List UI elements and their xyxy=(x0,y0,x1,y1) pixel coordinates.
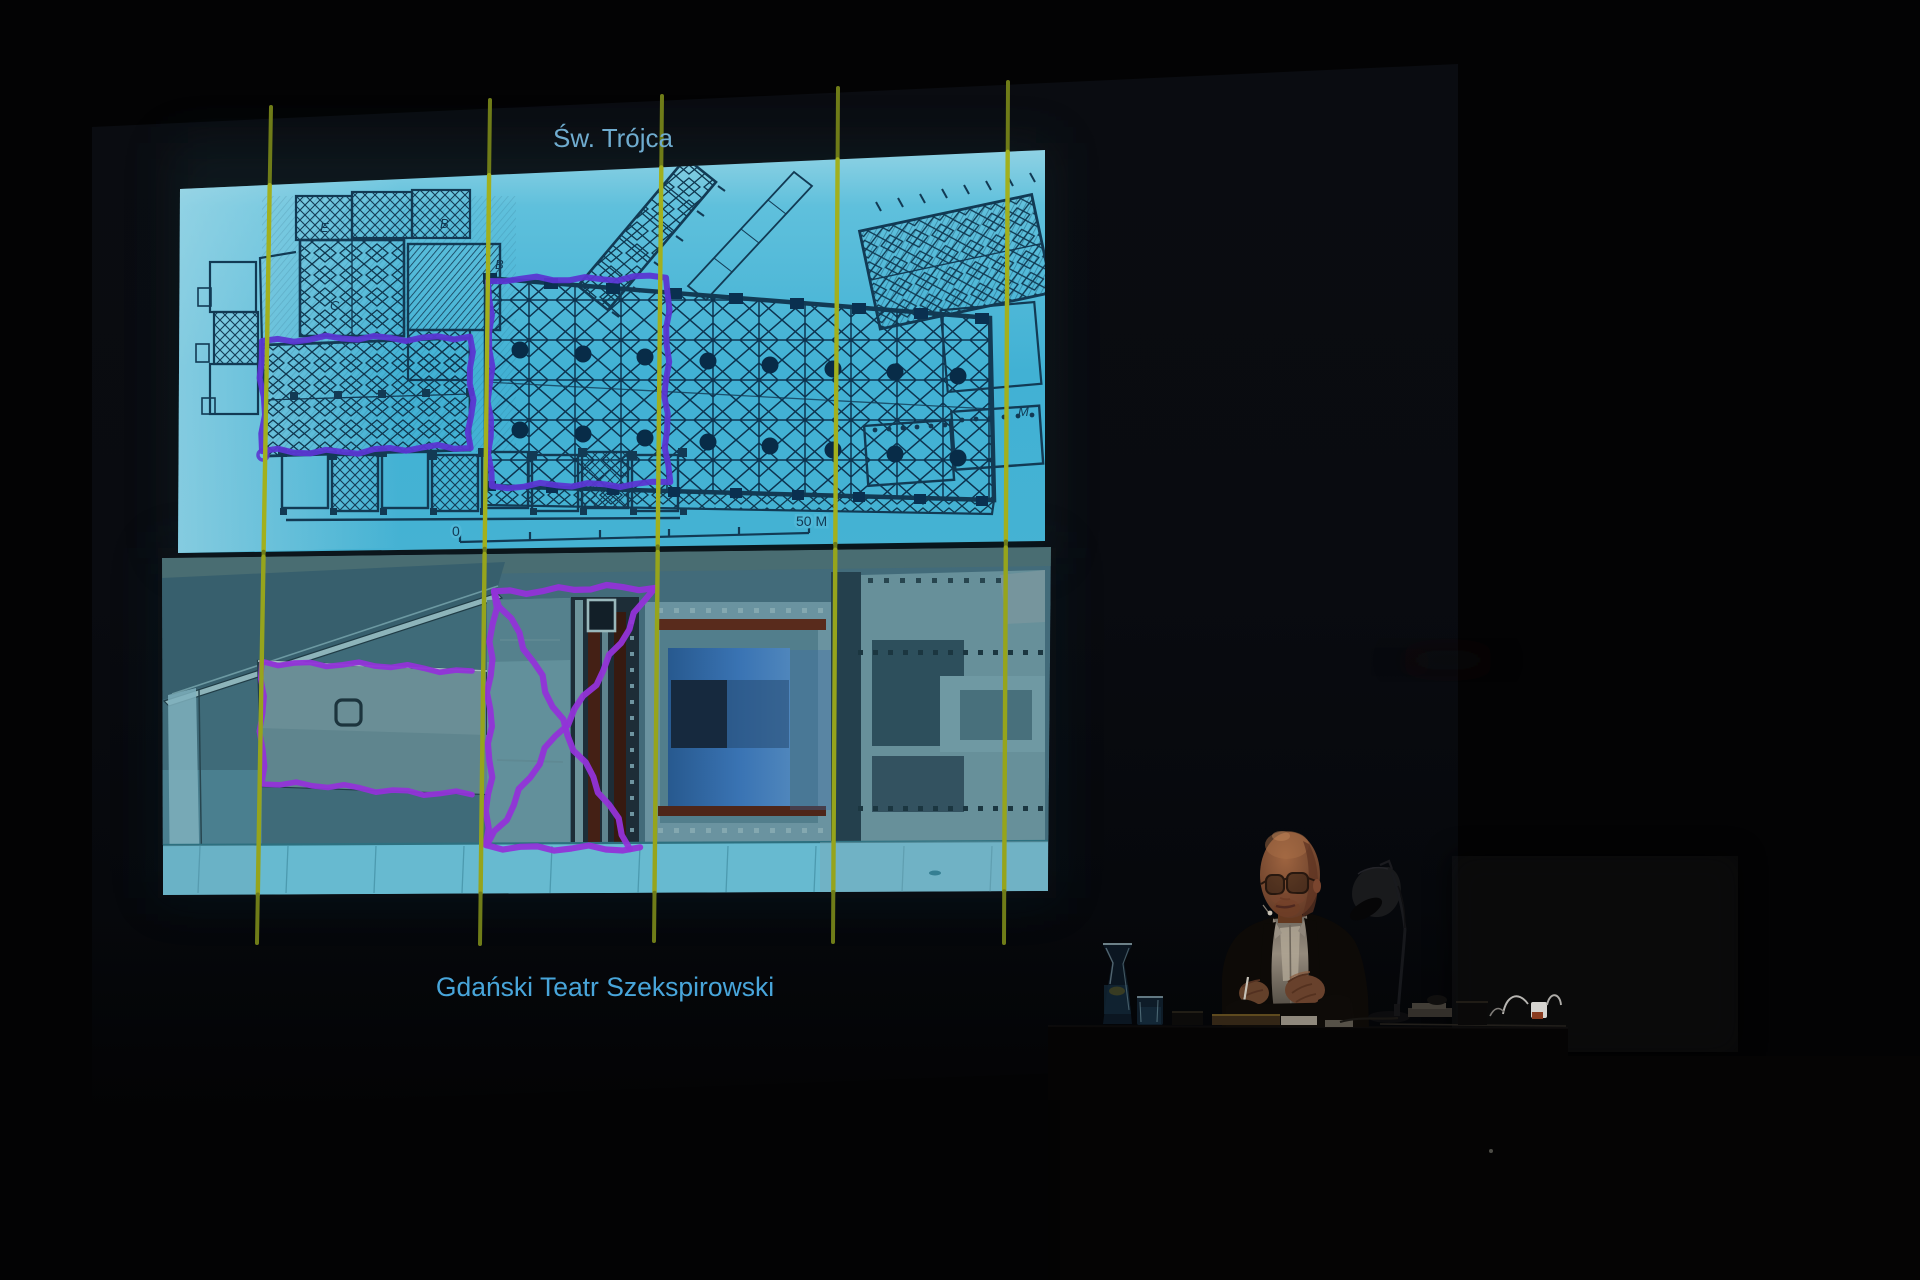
svg-text:0: 0 xyxy=(452,523,460,539)
svg-text:Gdański Teatr Szekspirowski: Gdański Teatr Szekspirowski xyxy=(436,972,774,1002)
svg-text:M: M xyxy=(1018,404,1029,419)
svg-text:E: E xyxy=(320,220,329,235)
svg-text:Św. Trójca: Św. Trójca xyxy=(553,123,673,153)
svg-text:B: B xyxy=(495,257,504,272)
svg-text:B: B xyxy=(440,216,449,231)
svg-text:50 M: 50 M xyxy=(796,513,827,529)
svg-text:C: C xyxy=(330,298,340,313)
